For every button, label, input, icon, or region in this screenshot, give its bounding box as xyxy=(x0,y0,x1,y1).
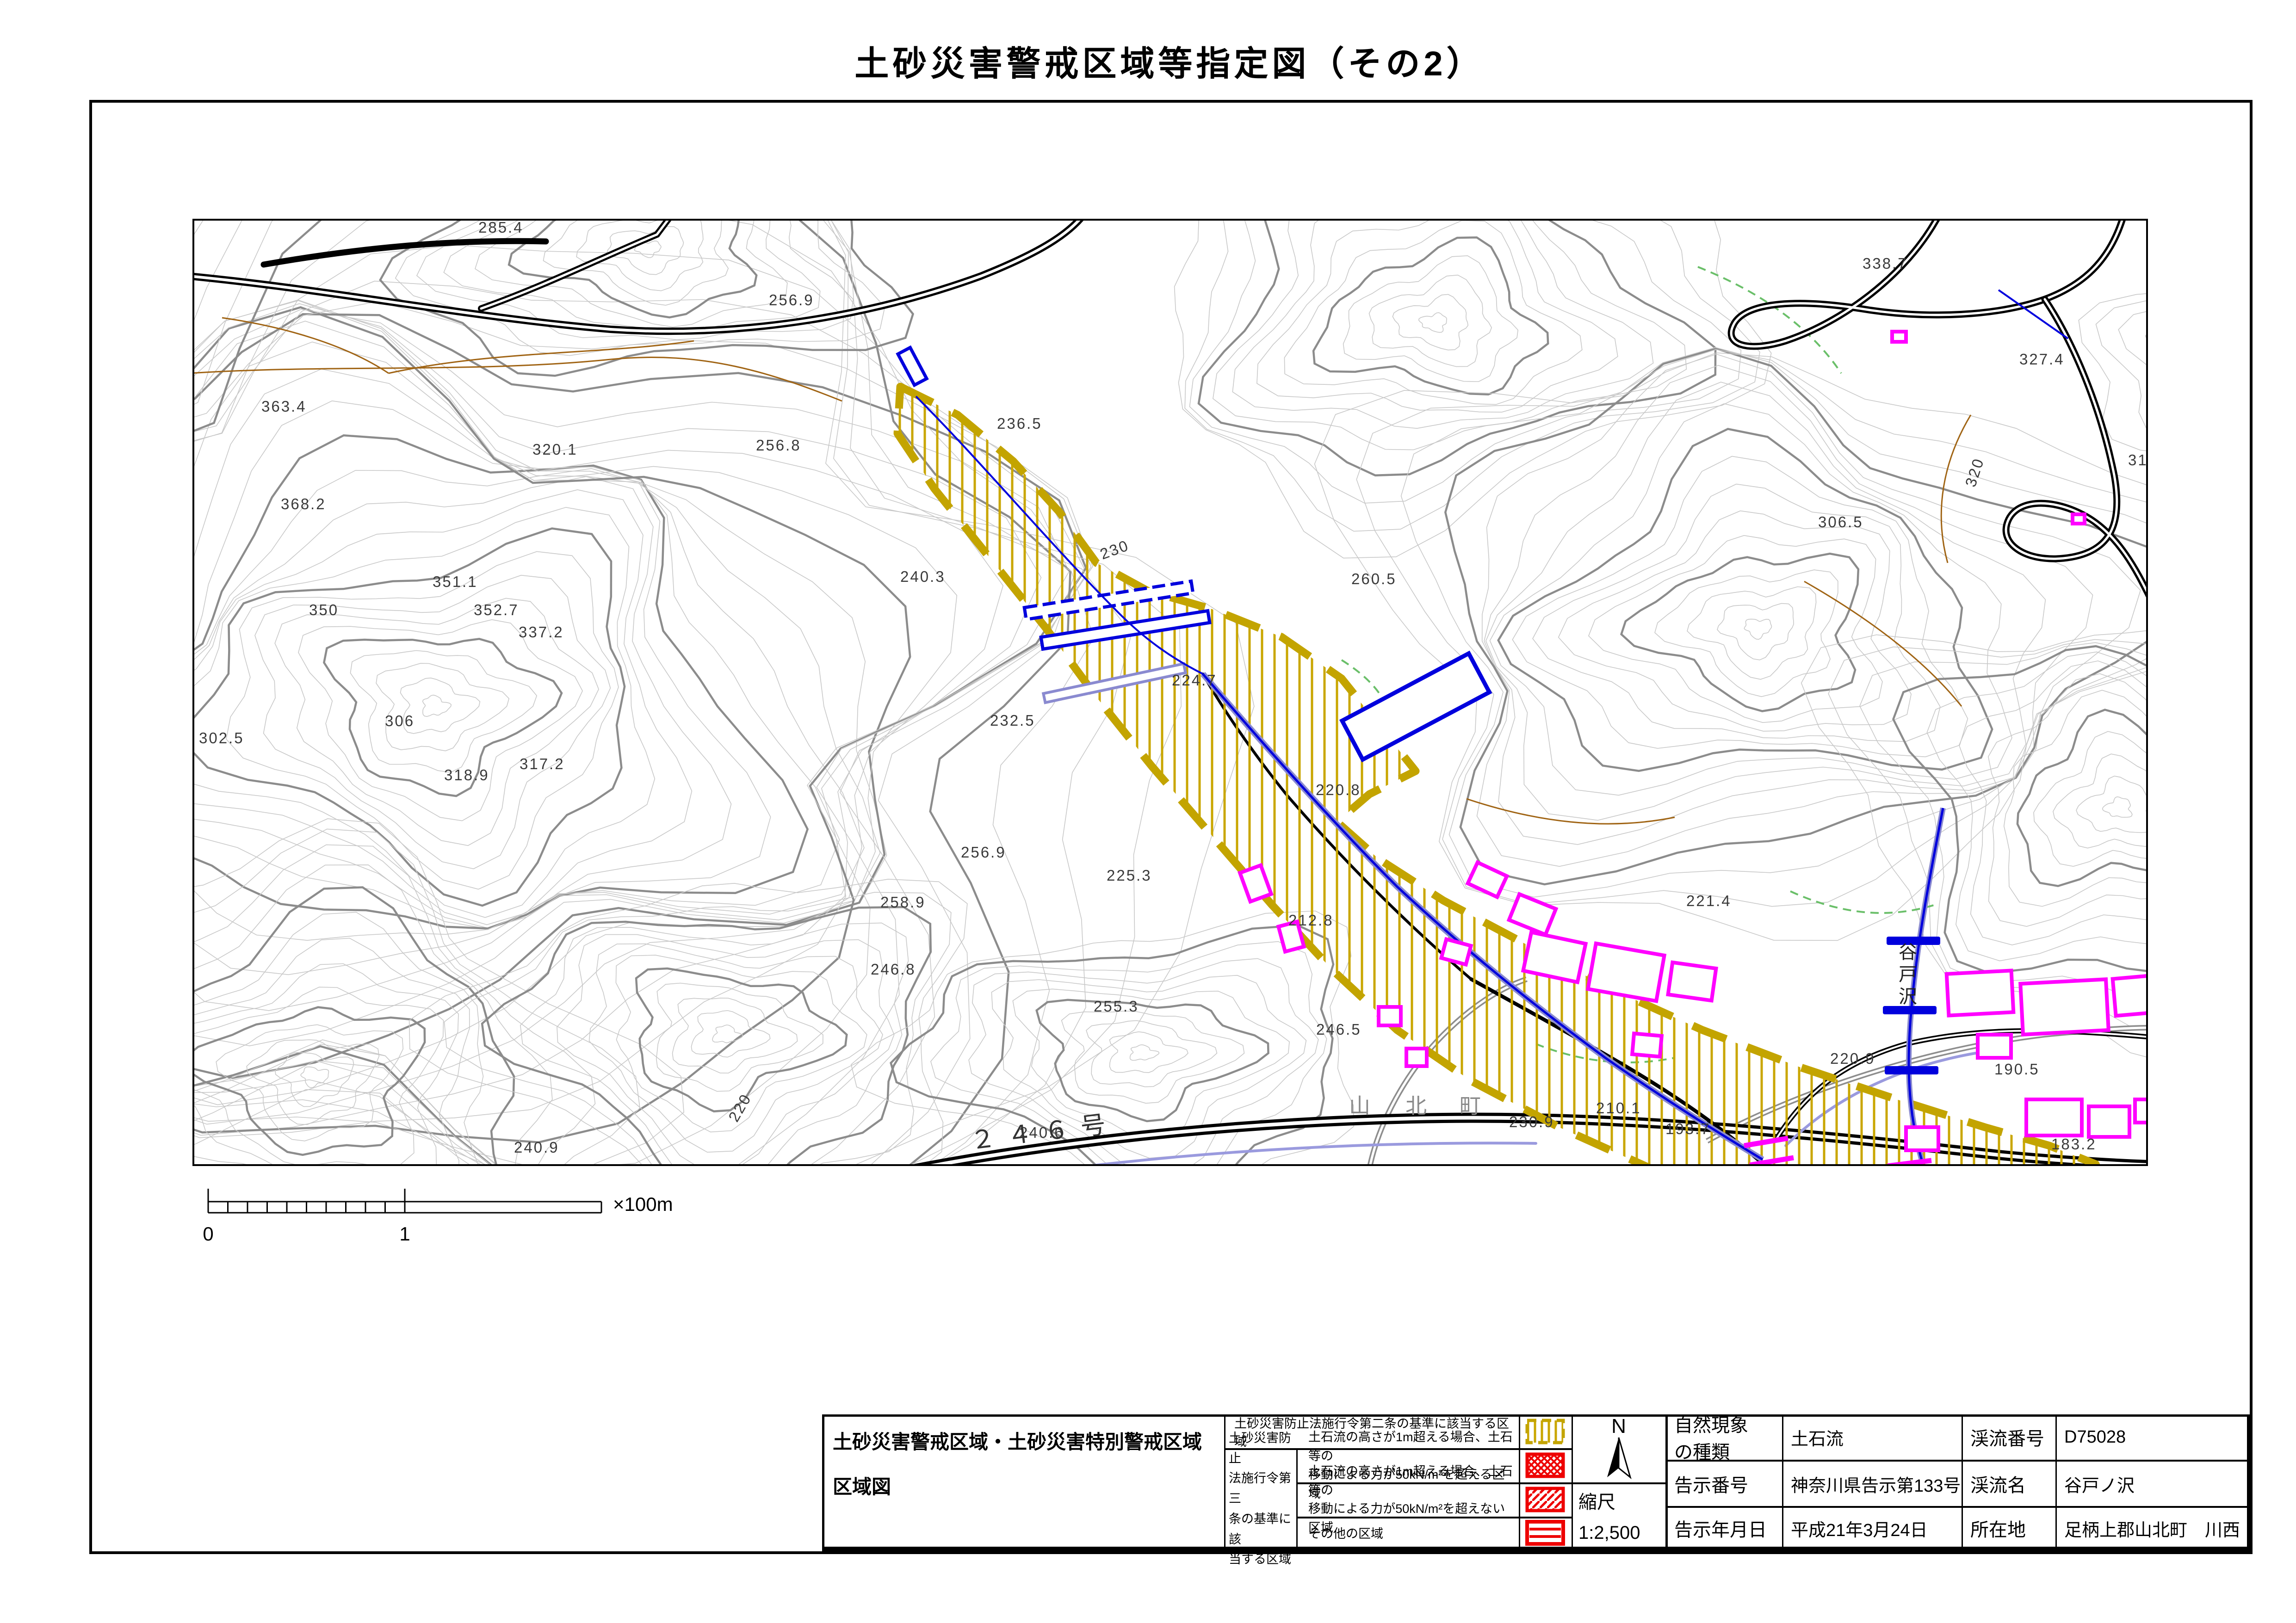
map-sheet-title-line2: 区域図 xyxy=(833,1476,891,1498)
legend-article3-group-label: 土砂災害防止 法施行令第三 条の基準に該 当する区域 xyxy=(1229,1448,1295,1550)
svg-text:317.2: 317.2 xyxy=(520,755,565,772)
info-label-stream-name: 渓流名 xyxy=(1964,1462,2060,1506)
svg-text:255.3: 255.3 xyxy=(1094,998,1139,1015)
map-svg: 285.4256.9338.7327.4317.3306.5320363.432… xyxy=(194,221,2146,1164)
table-border xyxy=(1296,1448,1298,1549)
svg-text:246.8: 246.8 xyxy=(871,961,916,978)
info-value-location: 足柄上郡山北町 川西 xyxy=(2058,1508,2252,1549)
svg-text:谷戸沢: 谷戸沢 xyxy=(1896,942,1917,1009)
warning-zone-polygon xyxy=(897,387,2110,1164)
svg-text:246.5: 246.5 xyxy=(1316,1021,1362,1038)
table-border xyxy=(822,1414,824,1551)
svg-text:236.5: 236.5 xyxy=(997,415,1042,432)
scale-bar: 0 1 ×100m xyxy=(194,1189,842,1258)
svg-text:山: 山 xyxy=(1349,1094,1370,1118)
svg-text:230.9: 230.9 xyxy=(1509,1113,1554,1130)
svg-text:220.8: 220.8 xyxy=(1316,781,1361,798)
svg-text:240.9: 240.9 xyxy=(514,1139,559,1156)
topographic-map-canvas: 285.4256.9338.7327.4317.3306.5320363.432… xyxy=(192,219,2148,1166)
info-label-stream-number: 渓流番号 xyxy=(1964,1414,2060,1460)
svg-text:320.1: 320.1 xyxy=(532,441,578,458)
legend-row-other: その他の区域 xyxy=(1308,1517,1514,1548)
map-sheet-title: 土砂災害警戒区域・土砂災害特別警戒区域 区域図 xyxy=(833,1420,1217,1547)
svg-text:317.3: 317.3 xyxy=(2128,451,2146,469)
svg-text:240.3: 240.3 xyxy=(900,568,946,585)
svg-text:338.7: 338.7 xyxy=(1863,255,1908,272)
scale-caption: 縮尺 xyxy=(1578,1492,1615,1512)
info-value-phenomenon: 土石流 xyxy=(1784,1414,1966,1460)
svg-text:363.4: 363.4 xyxy=(261,398,307,415)
compass-n-label: N xyxy=(1611,1416,1626,1438)
svg-text:327.4: 327.4 xyxy=(2019,351,2065,368)
info-value-notice-date: 平成21年3月24日 xyxy=(1784,1508,1966,1549)
svg-text:256.8: 256.8 xyxy=(756,437,801,454)
svg-text:193.7: 193.7 xyxy=(1665,1120,1711,1137)
svg-text:212.8: 212.8 xyxy=(1288,912,1334,929)
scale-one-label: 1 xyxy=(399,1223,410,1245)
svg-text:302.5: 302.5 xyxy=(199,729,244,747)
svg-text:183.2: 183.2 xyxy=(2051,1135,2097,1153)
scale-caption-cell: 縮尺 1:2,500 xyxy=(1578,1487,1664,1547)
table-border xyxy=(1224,1414,1225,1549)
svg-text:256.9: 256.9 xyxy=(769,291,814,309)
info-value-stream-name: 谷戸ノ沢 xyxy=(2058,1462,2252,1506)
page-title: 土砂災害警戒区域等指定図（その2） xyxy=(89,36,2250,86)
north-compass: N xyxy=(1572,1416,1665,1481)
svg-text:210.1: 210.1 xyxy=(1596,1099,1641,1117)
svg-text:230: 230 xyxy=(1098,537,1132,563)
svg-text:352.7: 352.7 xyxy=(474,601,519,618)
scale-zero-label: 0 xyxy=(203,1223,213,1245)
legend-other-area-icon xyxy=(1519,1518,1572,1548)
svg-text:368.2: 368.2 xyxy=(281,495,326,512)
svg-text:北: 北 xyxy=(1405,1094,1427,1118)
info-label-notice-date: 告示年月日 xyxy=(1668,1508,1785,1549)
info-label-phenomenon: 自然現象 の種類 xyxy=(1668,1414,1785,1460)
svg-text:232.5: 232.5 xyxy=(990,712,1035,729)
legend-special-zone-crosshatch-icon xyxy=(1519,1450,1572,1481)
svg-text:350: 350 xyxy=(309,601,339,618)
map-sheet-title-line1: 土砂災害警戒区域・土砂災害特別警戒区域 xyxy=(833,1431,1202,1453)
svg-text:285.4: 285.4 xyxy=(478,221,524,236)
info-label-notice-number: 告示番号 xyxy=(1668,1462,1785,1506)
svg-text:220: 220 xyxy=(725,1091,755,1125)
scale-value: 1:2,500 xyxy=(1578,1523,1640,1543)
legend-warning-zone-icon xyxy=(1519,1416,1572,1447)
svg-text:318.9: 318.9 xyxy=(444,766,489,784)
legend-row-under-50kn: 土石流の高さが1m超える場合、土石等の 移動による力が50kN/m²を超えない区… xyxy=(1308,1482,1514,1517)
svg-text:306: 306 xyxy=(385,712,415,729)
svg-text:220.9: 220.9 xyxy=(1830,1050,1875,1067)
svg-text:221.4: 221.4 xyxy=(1686,892,1732,909)
info-label-location: 所在地 xyxy=(1964,1508,2060,1549)
svg-text:256.9: 256.9 xyxy=(961,844,1006,861)
svg-text:町: 町 xyxy=(1460,1094,1481,1118)
svg-text:260.5: 260.5 xyxy=(1351,570,1397,587)
info-value-notice-number: 神奈川県告示第133号 xyxy=(1784,1462,1966,1506)
svg-text:190.5: 190.5 xyxy=(1994,1061,2040,1078)
svg-text:351.1: 351.1 xyxy=(433,573,478,590)
north-arrow-icon xyxy=(1607,1438,1619,1477)
legend-special-zone-diagonal-icon xyxy=(1519,1484,1572,1515)
svg-text:225.3: 225.3 xyxy=(1107,867,1152,884)
svg-text:320: 320 xyxy=(1962,456,1987,489)
svg-text:337.2: 337.2 xyxy=(519,623,564,641)
info-value-stream-number: D75028 xyxy=(2058,1414,2252,1460)
svg-text:306.5: 306.5 xyxy=(1818,513,1863,531)
svg-text:258.9: 258.9 xyxy=(880,894,926,911)
scale-unit-label: ×100m xyxy=(613,1193,673,1215)
svg-text:224.7: 224.7 xyxy=(1172,672,1217,689)
